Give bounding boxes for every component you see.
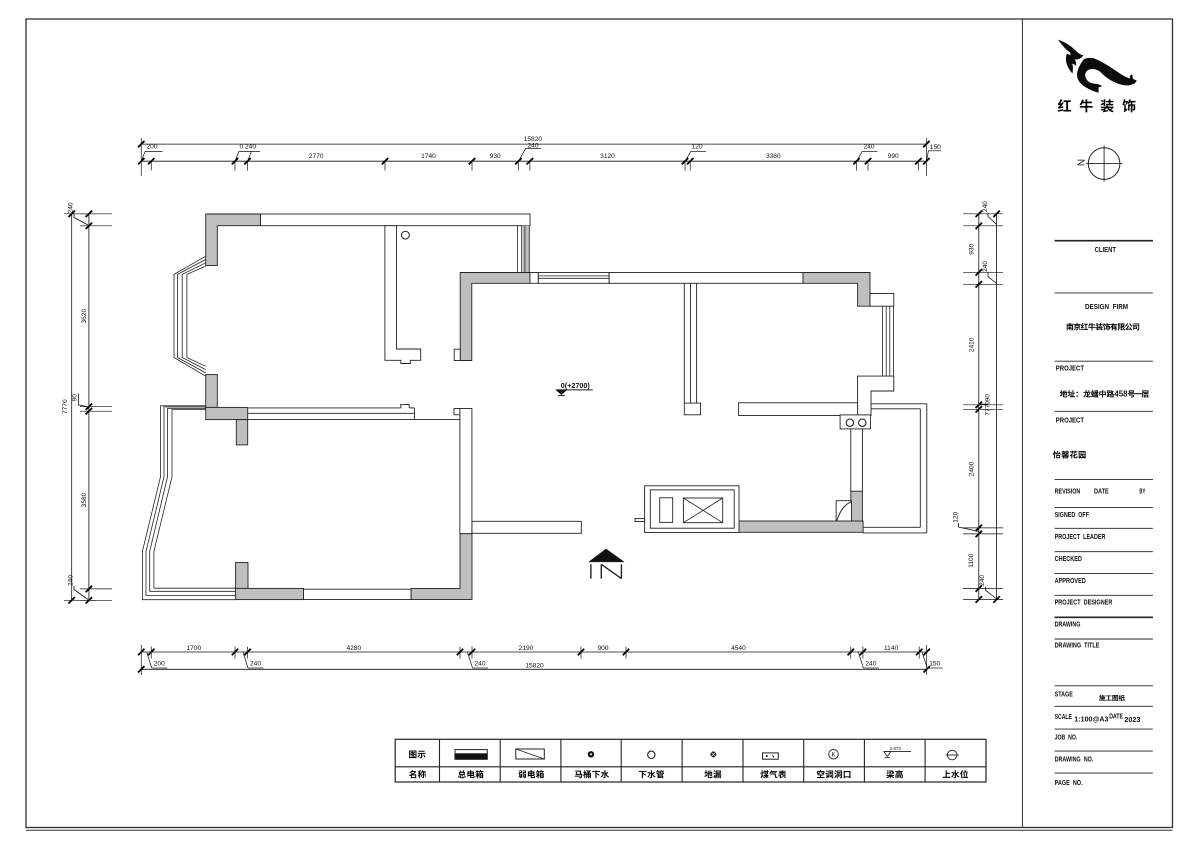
svg-text:15820: 15820: [525, 662, 544, 669]
svg-text:4540: 4540: [731, 645, 746, 652]
svg-text:120: 120: [952, 511, 959, 522]
svg-text:N: N: [1076, 159, 1087, 166]
svg-text:200: 200: [154, 661, 165, 668]
svg-text:REVISION: REVISION: [1055, 486, 1081, 495]
svg-text:90: 90: [984, 394, 991, 402]
svg-text:900: 900: [597, 645, 608, 652]
svg-text:3380: 3380: [766, 153, 781, 160]
svg-text:2023: 2023: [1124, 715, 1140, 724]
svg-text:SIGNED OFF: SIGNED OFF: [1055, 510, 1090, 519]
svg-text:BY: BY: [1139, 486, 1145, 495]
svg-text:150: 150: [929, 661, 940, 668]
svg-text:DESIGN FIRM: DESIGN FIRM: [1085, 302, 1128, 311]
svg-text:1:100@A3: 1:100@A3: [1074, 715, 1108, 724]
svg-text:1140: 1140: [884, 645, 899, 652]
svg-text:120: 120: [692, 144, 703, 151]
svg-text:240: 240: [982, 201, 989, 212]
svg-text:DATE: DATE: [1109, 711, 1123, 720]
svg-text:458: 458: [1114, 390, 1128, 399]
svg-text:150: 150: [930, 144, 941, 151]
svg-text:PROJECT LEADER: PROJECT LEADER: [1055, 532, 1106, 541]
svg-text:PAGE NO.: PAGE NO.: [1055, 778, 1083, 787]
svg-text:1100: 1100: [968, 553, 975, 568]
svg-text:PROJECT DESIGNER: PROJECT DESIGNER: [1055, 597, 1113, 606]
svg-text:240: 240: [982, 261, 989, 272]
svg-text:240: 240: [979, 575, 986, 586]
svg-text:2190: 2190: [519, 645, 534, 652]
svg-text:DRAWING TITLE: DRAWING TITLE: [1055, 641, 1100, 650]
svg-text:240: 240: [864, 144, 875, 151]
svg-text:PROJECT: PROJECT: [1056, 416, 1085, 425]
svg-text:4280: 4280: [346, 645, 361, 652]
svg-text:90: 90: [71, 394, 78, 402]
svg-text:1700: 1700: [186, 645, 201, 652]
svg-text:7770: 7770: [62, 399, 69, 414]
svg-text:APPROVED: APPROVED: [1055, 576, 1086, 585]
svg-text:1740: 1740: [421, 153, 436, 160]
svg-text:200: 200: [147, 144, 158, 151]
svg-text:CHECKED: CHECKED: [1055, 554, 1082, 563]
svg-text:K: K: [831, 753, 835, 759]
svg-text:CLIENT: CLIENT: [1095, 245, 1117, 254]
svg-text:JOB NO.: JOB NO.: [1055, 733, 1078, 742]
svg-text:240: 240: [865, 661, 876, 668]
svg-text:7770: 7770: [984, 401, 991, 416]
svg-text:PROJECT: PROJECT: [1056, 363, 1085, 372]
svg-text:SCALE: SCALE: [1055, 712, 1073, 721]
svg-text:DRAWING: DRAWING: [1055, 619, 1081, 628]
svg-text:0 240: 0 240: [240, 144, 257, 151]
svg-text:3120: 3120: [600, 153, 615, 160]
svg-text:240: 240: [250, 661, 261, 668]
svg-text:990: 990: [888, 153, 899, 160]
svg-text:930: 930: [968, 243, 975, 254]
svg-text:3580: 3580: [81, 492, 88, 507]
svg-text:STAGE: STAGE: [1055, 689, 1073, 698]
svg-text:2770: 2770: [309, 153, 324, 160]
svg-text:2.870: 2.870: [890, 746, 902, 751]
svg-text:2400: 2400: [968, 461, 975, 476]
svg-text:DATE: DATE: [1094, 486, 1109, 495]
svg-text:240: 240: [475, 661, 486, 668]
svg-text:2410: 2410: [968, 337, 975, 352]
svg-text:3620: 3620: [81, 309, 88, 324]
svg-text:930: 930: [490, 153, 501, 160]
svg-text:0(+2700): 0(+2700): [561, 381, 591, 390]
svg-text:240: 240: [68, 575, 75, 586]
svg-text:240: 240: [68, 202, 75, 213]
svg-text:DRAWING NO.: DRAWING NO.: [1055, 755, 1094, 764]
